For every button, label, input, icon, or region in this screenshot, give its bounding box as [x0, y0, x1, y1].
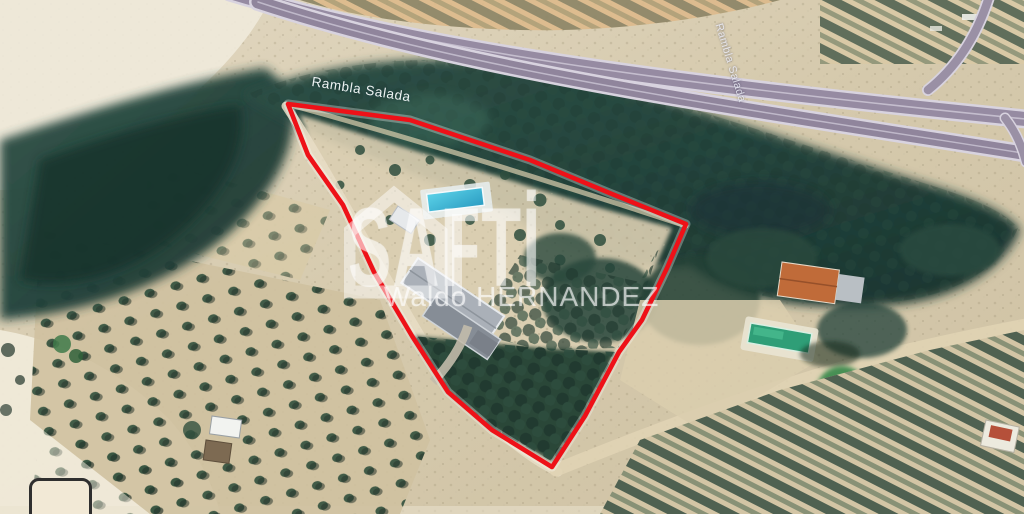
- watermark-agent-name: Waldo HERNANDEZ: [384, 281, 659, 313]
- satellite-image: [0, 0, 1024, 514]
- aerial-map: Rambla Salada Rambla Salada SAFTİ Waldo …: [0, 0, 1024, 514]
- cropped-rounded-box: [29, 478, 92, 514]
